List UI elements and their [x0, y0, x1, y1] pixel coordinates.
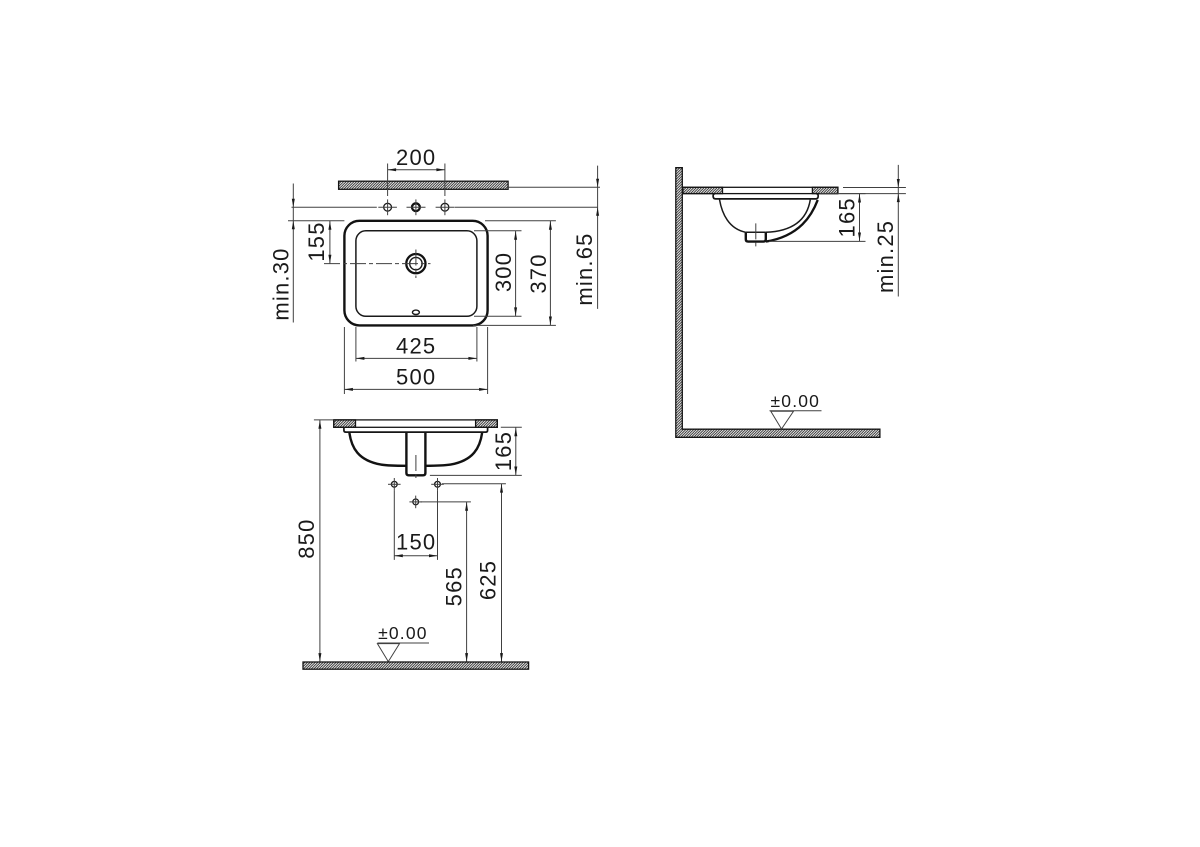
svg-text:±0.00: ±0.00 — [770, 391, 820, 411]
svg-text:165: 165 — [835, 197, 860, 237]
svg-text:min.65: min.65 — [572, 232, 597, 305]
svg-text:425: 425 — [396, 334, 436, 359]
svg-text:850: 850 — [294, 518, 319, 558]
svg-text:300: 300 — [491, 252, 516, 292]
svg-text:±0.00: ±0.00 — [378, 623, 428, 643]
svg-text:165: 165 — [491, 431, 516, 471]
svg-text:500: 500 — [396, 365, 436, 390]
svg-text:625: 625 — [476, 560, 501, 600]
svg-text:370: 370 — [526, 253, 551, 293]
svg-text:min.30: min.30 — [268, 247, 293, 320]
svg-text:min.25: min.25 — [873, 220, 898, 293]
svg-text:155: 155 — [304, 221, 329, 261]
svg-text:200: 200 — [396, 145, 436, 170]
svg-text:565: 565 — [442, 566, 467, 606]
svg-text:150: 150 — [396, 530, 436, 555]
